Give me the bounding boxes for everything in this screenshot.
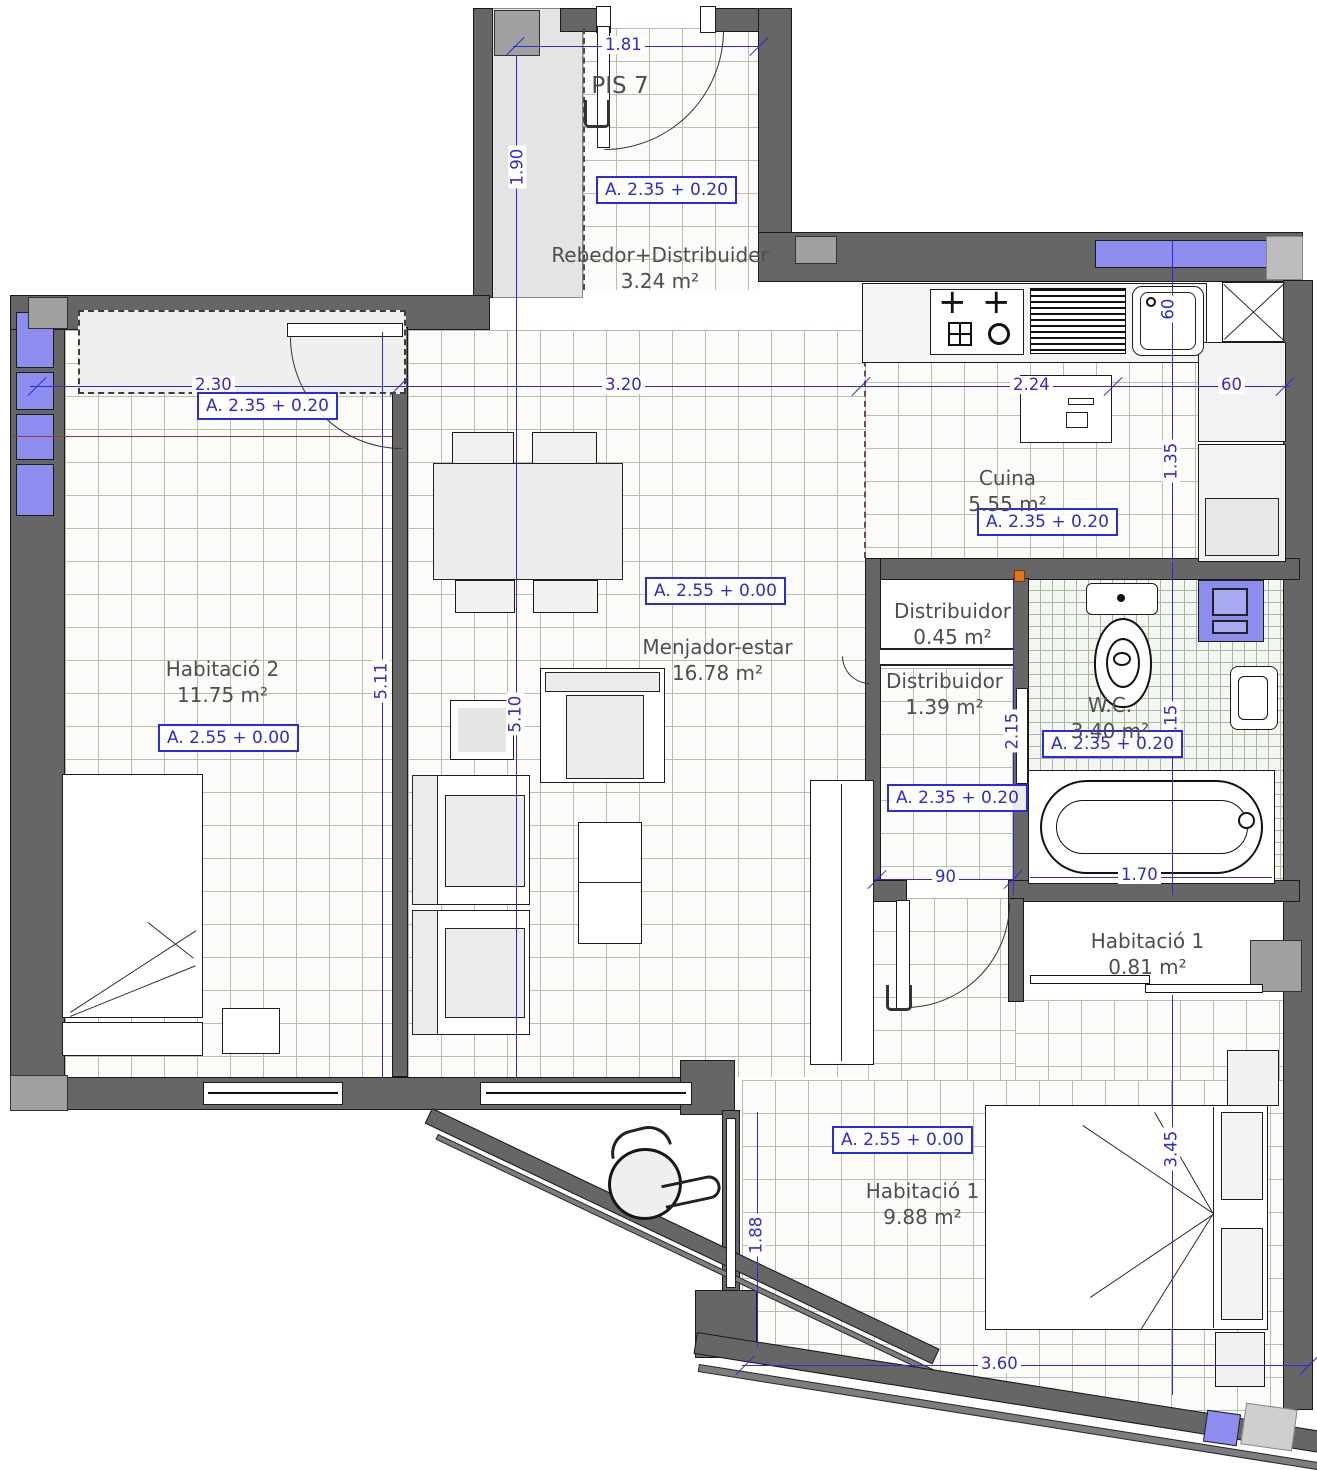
height-label-bedroom2: A. 2.55 + 0.00 [158, 724, 299, 752]
nightstand [1215, 1332, 1265, 1387]
room-area: 9.88 m² [883, 1205, 961, 1229]
bedroom1-window-corner [1203, 1410, 1241, 1446]
height-label-livingroom: A. 2.55 + 0.00 [645, 577, 786, 605]
room-name: Habitació 2 [166, 657, 280, 681]
bedroom1-corner-cap [1240, 1403, 1297, 1452]
dim-value: 3.20 [602, 376, 645, 394]
left-window-pane-3 [16, 414, 54, 460]
dim-value: 1.88 [747, 1214, 765, 1257]
sofa-cushion [445, 928, 525, 1018]
room-area: 11.75 m² [177, 683, 268, 707]
wc-window-pane [1212, 620, 1248, 634]
single-bed [62, 774, 203, 1018]
nightstand [1227, 1050, 1279, 1106]
room-label-closet: Habitació 1 0.81 m² [1070, 928, 1225, 980]
window-bottom-2-line [486, 1092, 686, 1094]
bedroom1-door-handle [886, 985, 912, 1011]
pillow [1221, 1112, 1263, 1200]
kitchen-sink-drain [1146, 297, 1156, 307]
dim-line [382, 332, 383, 1077]
coffee-table-line [578, 882, 642, 883]
oven-handle [1068, 398, 1094, 405]
wall-left-outer [10, 295, 65, 1080]
single-bed-foot [62, 1022, 203, 1056]
wall-right-outer [1283, 280, 1313, 1410]
room-area: 1.39 m² [905, 695, 983, 719]
stove-burner-icon: + [982, 282, 1012, 322]
living-wardrobe-line [841, 784, 842, 1061]
dim-line [1172, 995, 1173, 1395]
dim-value: 1.70 [1118, 866, 1161, 884]
dining-chair [532, 432, 597, 464]
kitchen-top-right-cap [1266, 236, 1303, 280]
dim-value: 5.11 [372, 660, 390, 703]
dim-value: 2.24 [1010, 376, 1053, 394]
hall-sliding-door [880, 648, 1014, 666]
left-window-pane-4 [16, 464, 54, 516]
height-label-vestibule: A. 2.35 + 0.20 [596, 176, 737, 204]
dim-line [516, 292, 517, 1077]
closet-sliding-door [1145, 984, 1263, 993]
toilet-drain [1113, 652, 1131, 666]
pillow [1221, 1228, 1263, 1320]
height-label-bedroom2-top: A. 2.35 + 0.20 [197, 392, 338, 420]
room-name: W.C. [1088, 693, 1132, 717]
dim-value: 3.45 [1162, 1128, 1180, 1171]
bathtub-drain [1238, 812, 1255, 829]
beam-line [12, 436, 392, 437]
double-bed-headboard-line [1213, 1107, 1214, 1328]
oven-door [1066, 412, 1088, 428]
door-post-right [700, 6, 716, 33]
dining-chair [455, 580, 515, 613]
room-label-livingroom: Menjador-estar 16.78 m² [625, 634, 810, 686]
dim-value: 5.10 [506, 693, 524, 736]
lobby-corner-block [494, 10, 540, 56]
washbasin-bowl [1238, 676, 1268, 720]
height-label-hall: A. 2.35 + 0.20 [887, 784, 1028, 812]
wall-corridor-right [1008, 898, 1024, 1002]
plan-title: PIS 7 [560, 72, 680, 102]
side-table-top [458, 708, 506, 752]
stove-burner-square [948, 322, 972, 346]
dim-value: 3.60 [978, 1355, 1021, 1373]
toilet-button [1117, 594, 1125, 602]
room-label-vestibule: Rebedor+Distribuider 3.24 m² [525, 242, 795, 294]
kitchen-window [1095, 240, 1267, 268]
nightstand [222, 1008, 280, 1054]
room-name: Habitació 1 [1091, 929, 1205, 953]
height-label-bedroom1: A. 2.55 + 0.00 [832, 1126, 973, 1154]
wc-window-pane [1212, 588, 1248, 616]
living-wardrobe [810, 780, 874, 1065]
sofa-cushion [445, 795, 525, 887]
room-name: Rebedor+Distribuider [551, 243, 768, 267]
bathtub-basin [1056, 800, 1248, 854]
dim-value: 60 [1218, 376, 1245, 394]
stove-burner-round [988, 323, 1010, 345]
room-area: 16.78 m² [672, 661, 763, 685]
room-name: Menjador-estar [642, 635, 792, 659]
room-name: Habitació 1 [866, 1179, 980, 1203]
dim-value: 1.35 [1162, 440, 1180, 483]
entry-door-handle [584, 100, 610, 128]
marker-orange [1014, 570, 1025, 582]
room-area: 3.24 m² [621, 269, 699, 293]
sofa-back [412, 910, 438, 1035]
kitchen-cabinet-inner [1205, 498, 1279, 556]
dining-chair [533, 580, 598, 613]
dim-value: 1.81 [602, 36, 645, 54]
bottom-left-block [10, 1075, 68, 1111]
room-label-kitchen: Cuina 5.55 m² [930, 465, 1085, 517]
floor-plan: + + [0, 0, 1317, 1470]
kitchen-top-block [795, 236, 837, 264]
room-label-bedroom1: Habitació 1 9.88 m² [840, 1178, 1005, 1230]
room-name: Cuina [979, 466, 1036, 490]
room-area: 0.45 m² [913, 625, 991, 649]
room-area: 3.40 m² [1071, 719, 1149, 743]
bedroom2-door-leaf [287, 323, 403, 337]
dining-chair [452, 432, 514, 464]
coffee-table [578, 822, 642, 944]
bedroom2-corner-block [28, 297, 68, 329]
room-label-hall2: Distribuidor 1.39 m² [872, 668, 1017, 720]
dim-value: 1.90 [508, 146, 526, 189]
terrace-window-pane [726, 1118, 736, 1288]
room-label-hall1: Distribuidor 0.45 m² [880, 598, 1025, 650]
stove-burner-icon: + [938, 282, 968, 322]
room-label-wc: W.C. 3.40 m² [1050, 692, 1170, 744]
room-area: 5.55 m² [968, 492, 1046, 516]
drainboard [1030, 288, 1126, 354]
armchair-seat [566, 695, 644, 779]
left-window-pane-2 [16, 372, 54, 410]
dim-value: 60 [1159, 296, 1177, 323]
dining-table [433, 463, 623, 580]
room-label-bedroom2: Habitació 2 11.75 m² [140, 656, 305, 708]
room-area: 0.81 m² [1108, 955, 1186, 979]
wall-vestibule-top-right [712, 8, 760, 32]
dim-value: 90 [932, 868, 959, 886]
sofa-back [412, 775, 438, 905]
dim-line [742, 1365, 1310, 1366]
window-bottom-1-line [208, 1092, 338, 1094]
wall-vestibule-left [473, 8, 493, 298]
room-name: Distribuidor [886, 669, 1003, 693]
room-name: Distribuidor [894, 599, 1011, 623]
